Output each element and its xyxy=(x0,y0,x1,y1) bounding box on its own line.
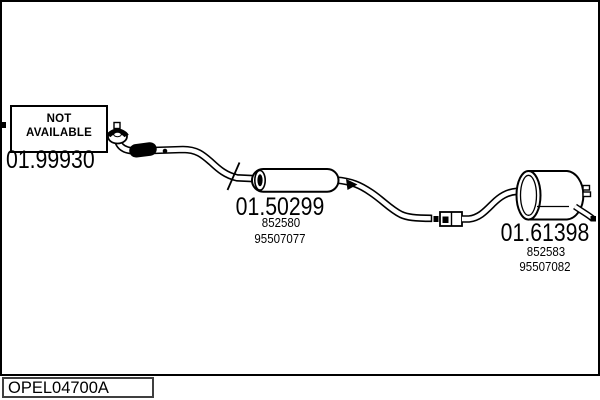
hanger-bracket-icon xyxy=(583,186,590,191)
flex-pipe-icon xyxy=(136,149,150,151)
pipe-dot-marker xyxy=(163,149,168,154)
diagram-code-box: OPEL04700A xyxy=(2,377,154,398)
part-ref-rear-muffler: 95507082 xyxy=(490,261,600,274)
not-available-line2: AVAILABLE xyxy=(12,126,106,140)
sleeve-clamp-icon xyxy=(434,212,463,226)
hanger-square-marker xyxy=(114,123,120,129)
exhaust-diagram-canvas: NOT AVAILABLE 01.99930 01.50299 852580 9… xyxy=(0,0,600,400)
oe-ref-center-muffler: 852580 xyxy=(189,217,373,230)
oe-ref-rear-muffler: 852583 xyxy=(491,246,600,259)
center-muffler-shape xyxy=(252,169,339,192)
flange-gasket-icon xyxy=(108,123,127,144)
part-code-front-pipe[interactable]: 01.99930 xyxy=(6,148,95,173)
rear-muffler-shape xyxy=(517,171,597,222)
edge-square-marker xyxy=(1,122,6,128)
hanger-bracket-icon xyxy=(583,192,591,197)
diagram-code: OPEL04700A xyxy=(8,379,109,397)
part-ref-center-muffler: 95507077 xyxy=(188,233,372,246)
part-code-rear-muffler[interactable]: 01.61398 xyxy=(494,221,596,246)
not-available-line1: NOT xyxy=(12,112,106,126)
